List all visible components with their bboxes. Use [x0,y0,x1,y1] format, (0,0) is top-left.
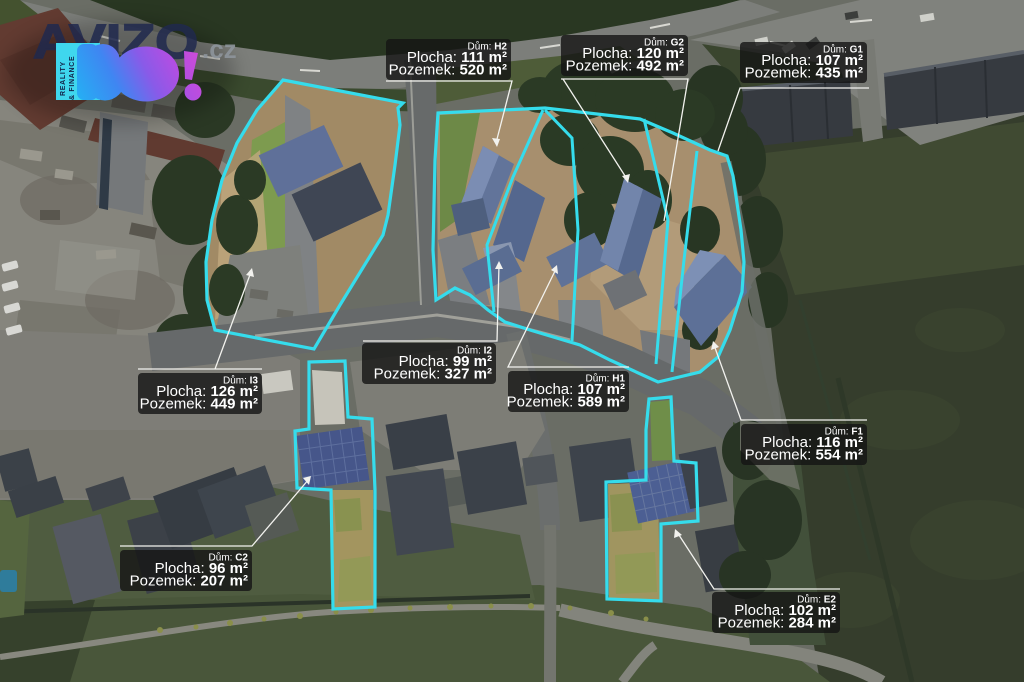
svg-text:Pozemek: 435 m²: Pozemek: 435 m² [745,65,863,82]
svg-text:Pozemek: 284 m²: Pozemek: 284 m² [718,615,836,632]
svg-text:Pozemek: 520 m²: Pozemek: 520 m² [389,62,507,79]
svg-text:Pozemek: 449 m²: Pozemek: 449 m² [140,396,258,413]
svg-text:.cz: .cz [202,34,237,64]
svg-text:Pozemek: 207 m²: Pozemek: 207 m² [130,573,248,590]
svg-text:REALITY: REALITY [60,61,67,96]
svg-text:Pozemek: 492 m²: Pozemek: 492 m² [566,58,684,75]
svg-text:Pozemek: 554 m²: Pozemek: 554 m² [745,447,863,464]
svg-text:Pozemek: 589 m²: Pozemek: 589 m² [507,394,625,411]
svg-text:& FINANCE: & FINANCE [69,56,76,100]
svg-text:Pozemek: 327 m²: Pozemek: 327 m² [374,366,492,383]
